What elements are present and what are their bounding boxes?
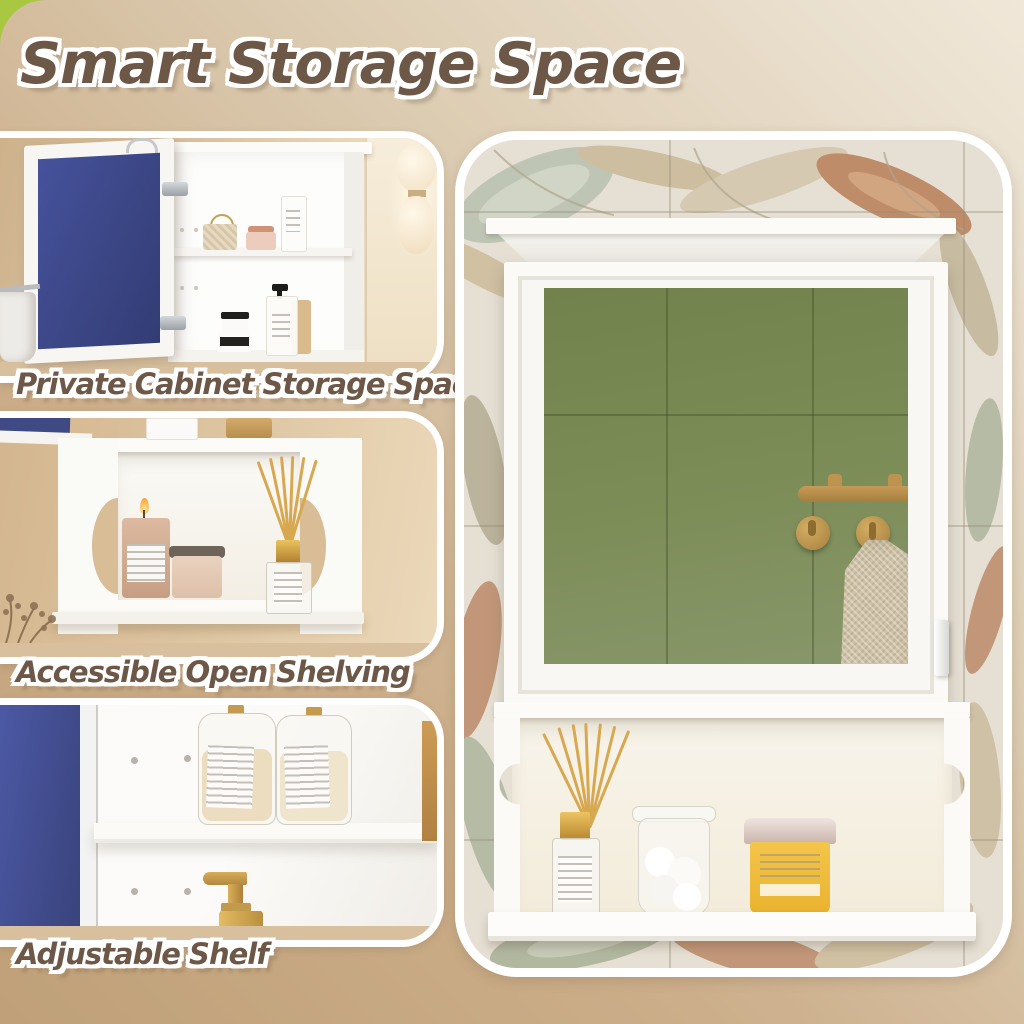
- peg-hole: [184, 888, 191, 895]
- peg-hole: [180, 228, 184, 232]
- side-cutout: [92, 498, 118, 594]
- feature-caption: Private Cabinet Storage Space: [16, 370, 487, 399]
- door-mirror-back: [38, 153, 160, 349]
- dried-flowers: [0, 570, 80, 643]
- brass-rail: [798, 486, 908, 502]
- crown-slope: [498, 234, 944, 264]
- open-cabinet-door: [24, 138, 174, 364]
- wall-lamp-globe: [396, 144, 436, 192]
- peg-hole: [194, 286, 198, 290]
- feature-photo-adjustable-shelf: [0, 698, 444, 947]
- candle-label: [127, 544, 165, 582]
- peg-hole: [180, 286, 184, 290]
- hook-pin: [869, 522, 876, 540]
- feature-caption: Adjustable Shelf: [16, 940, 268, 969]
- jar-label-band: [220, 337, 249, 346]
- feature-photo-private-cabinet: [0, 131, 444, 383]
- woven-basket: [203, 224, 237, 250]
- bottle-label: [272, 314, 290, 340]
- round-hook: [796, 516, 830, 550]
- cream-jar: [172, 556, 222, 598]
- cotton-ball: [673, 883, 701, 911]
- peg-hole: [194, 228, 198, 232]
- diffuser-label: [274, 572, 302, 604]
- door-handle: [934, 620, 949, 676]
- hinge: [162, 182, 188, 196]
- black-jar-lid: [221, 312, 249, 319]
- bottle-label: [284, 745, 330, 808]
- page-title: Smart Storage Space: [20, 36, 681, 93]
- hero-photo-mirror-cabinet: [455, 131, 1012, 977]
- bottle-label: [286, 210, 300, 232]
- open-shelf-top: [494, 702, 970, 718]
- hand-towel: [0, 292, 36, 362]
- open-shelf-floor: [488, 912, 976, 941]
- diffuser-cap: [276, 540, 300, 564]
- white-jar-on-top: [146, 418, 198, 440]
- mirror-glass: [544, 288, 908, 664]
- tile-joint: [812, 288, 814, 664]
- bottle-label: [206, 745, 254, 809]
- cream-jar: [246, 232, 276, 250]
- peg-hole: [131, 888, 138, 895]
- stacked-jar: [222, 319, 248, 331]
- shelf-bracket-left: [494, 718, 520, 938]
- cream-jar-lid: [744, 818, 836, 844]
- towel: [840, 540, 908, 664]
- diffuser-cap: [560, 812, 590, 840]
- chrome-ring: [126, 138, 158, 153]
- refill-bottle: [198, 713, 276, 825]
- refill-bottle: [276, 715, 352, 825]
- soap-pump-neck: [228, 884, 243, 905]
- diffuser-reeds: [250, 452, 330, 548]
- cotton-jar: [638, 818, 710, 916]
- jar-label-band: [760, 884, 820, 896]
- shelf-bracket-right: [944, 718, 970, 938]
- crown-molding: [486, 218, 956, 234]
- jar-text: [760, 854, 820, 880]
- product-infographic: Smart Storage Space: [0, 0, 1024, 1024]
- hinge: [160, 316, 186, 330]
- feature-caption: Accessible Open Shelving: [16, 658, 410, 687]
- tile-joint: [544, 414, 908, 416]
- wall-lamp-globe: [398, 196, 434, 254]
- diffuser-label: [558, 856, 592, 902]
- peg-hole: [184, 755, 191, 762]
- feature-photo-open-shelving: [0, 411, 444, 664]
- tile-joint: [666, 288, 668, 664]
- peg-hole: [131, 757, 138, 764]
- yellow-cream-jar: [750, 842, 830, 914]
- cabinet-side-wall: [344, 152, 364, 362]
- door-edge: [80, 705, 98, 926]
- soap-dispenser-body: [219, 911, 263, 926]
- mirror-door-back: [0, 705, 80, 926]
- gold-bottle-on-top: [226, 418, 272, 438]
- amber-bottle: [422, 721, 437, 841]
- hook-pin: [808, 520, 816, 536]
- shelf-front-lip: [52, 612, 364, 624]
- adjustable-shelf-board: [94, 823, 437, 843]
